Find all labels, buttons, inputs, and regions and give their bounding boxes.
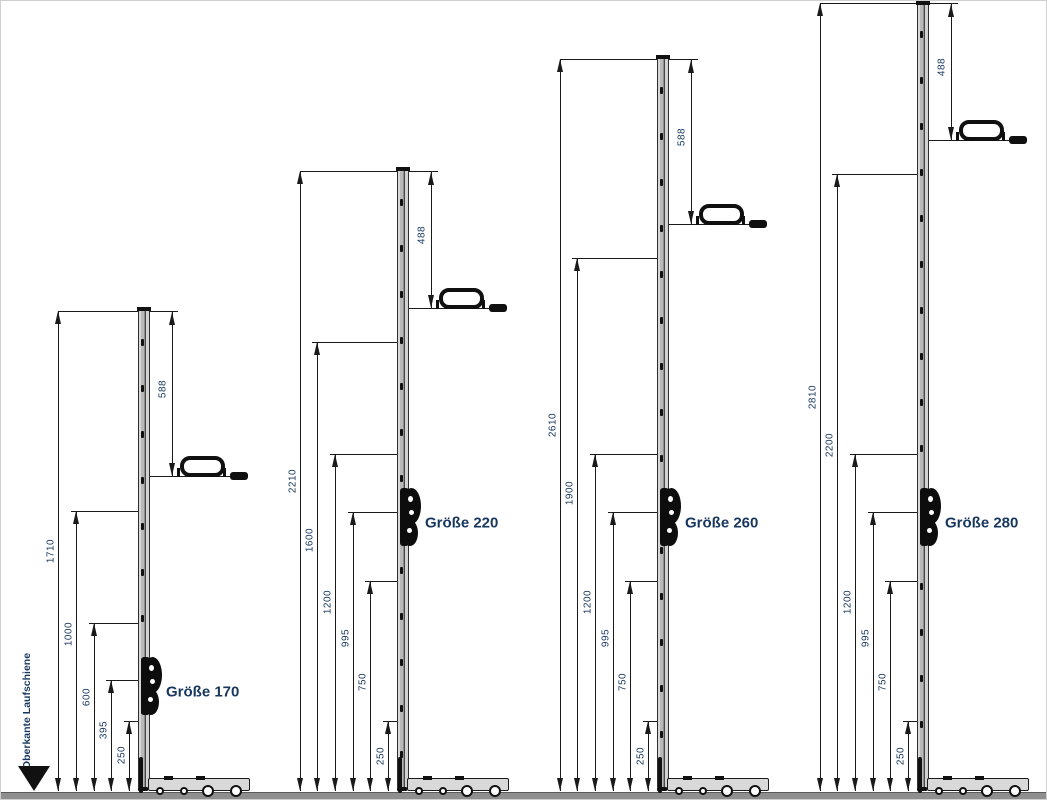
carriage-roller — [415, 787, 423, 795]
top-offset-dimension-value: 588 — [158, 380, 169, 398]
dimension-tick-line — [625, 581, 657, 582]
dimension-arrow-up-icon — [126, 721, 132, 734]
carriage-roller — [721, 785, 733, 797]
gear-rail — [138, 311, 150, 787]
dimension-tick-line — [330, 454, 397, 455]
dimension-line — [613, 512, 614, 791]
dimension-line — [837, 174, 838, 791]
dimension-value: 250 — [636, 747, 647, 765]
dimension-line — [855, 454, 856, 791]
handle-icon — [439, 288, 484, 309]
rail-locking-point — [141, 339, 144, 346]
dimension-arrow-down-icon — [350, 778, 356, 791]
rail-locking-point — [660, 409, 663, 416]
dimension-line — [630, 581, 631, 791]
dimension-arrow-down-icon — [428, 295, 434, 308]
rail-locking-point — [920, 721, 923, 728]
gearbox-detail — [662, 520, 678, 546]
dimension-value: 2210 — [288, 469, 299, 493]
dimension-value: 1000 — [64, 622, 75, 646]
dimension-tick-line — [365, 581, 397, 582]
gearbox-detail — [922, 488, 941, 524]
gearbox-icon — [400, 488, 422, 546]
dimension-tick-line — [832, 174, 917, 175]
rail-locking-point — [400, 199, 403, 206]
rail-locking-point — [920, 353, 923, 360]
dimension-tick-line — [903, 721, 917, 722]
gear-rail — [917, 3, 929, 787]
carriage-detail — [423, 776, 432, 780]
rail-locking-point — [400, 567, 403, 574]
dimension-tick-line — [885, 581, 917, 582]
dimension-arrow-up-icon — [385, 721, 391, 734]
dimension-arrow-up-icon — [870, 512, 876, 525]
dimension-arrow-down-icon — [385, 778, 391, 791]
dimension-value: 2810 — [808, 385, 819, 409]
gearbox-detail — [922, 520, 938, 546]
rail-top-cap — [916, 1, 930, 5]
size-group-label: Größe 280 — [945, 515, 1018, 532]
handle-grip — [489, 304, 507, 312]
carriage-roller — [230, 785, 242, 797]
dimension-arrow-down-icon — [688, 211, 694, 224]
rail-locking-point — [400, 613, 403, 620]
dimension-arrow-up-icon — [350, 512, 356, 525]
gearbox-detail — [669, 510, 674, 515]
carriage-roller — [1009, 785, 1021, 797]
dimension-tick-line — [608, 512, 657, 513]
carriage-roller — [981, 785, 993, 797]
rail-locking-point — [920, 31, 923, 38]
gearbox-detail — [407, 528, 412, 533]
gearbox-detail — [149, 665, 154, 671]
dimension-arrow-down-icon — [852, 778, 858, 791]
rail-locking-point — [660, 455, 663, 462]
dimension-arrow-down-icon — [55, 778, 61, 791]
handle-foot — [177, 468, 180, 477]
rail-locking-point — [400, 337, 403, 344]
dimension-value: 750 — [878, 673, 889, 691]
rail-locking-point — [660, 547, 663, 554]
gearbox-detail — [668, 496, 673, 502]
gearbox-detail — [143, 657, 162, 693]
dimension-tick-line — [89, 623, 138, 624]
rail-locking-point — [920, 583, 923, 590]
carriage-detail — [715, 776, 724, 780]
dimension-arrow-up-icon — [948, 4, 954, 17]
dimension-value: 1900 — [565, 481, 576, 505]
rail-locking-point — [141, 523, 144, 530]
dimension-arrow-down-icon — [557, 778, 563, 791]
dimension-value: 1200 — [323, 590, 334, 614]
dimension-arrow-up-icon — [592, 454, 598, 467]
dimension-arrow-down-icon — [108, 778, 114, 791]
rail-locking-point — [660, 271, 663, 278]
carriage-detail — [975, 776, 984, 780]
dimension-value: 2610 — [548, 413, 559, 437]
gearbox-detail — [927, 528, 932, 533]
dimension-arrow-up-icon — [108, 680, 114, 693]
top-tick-line — [560, 59, 698, 60]
gearbox-detail — [667, 528, 672, 533]
rail-locking-point — [660, 639, 663, 646]
rail-locking-point — [660, 363, 663, 370]
dimension-line — [370, 581, 371, 791]
size-group-label: Größe 260 — [685, 515, 758, 532]
handle-foot — [956, 132, 959, 141]
carriage-detail — [196, 776, 205, 780]
rail-locking-point — [660, 317, 663, 324]
corner-bracket-foot — [657, 787, 667, 791]
dimension-arrow-down-icon — [332, 778, 338, 791]
rail-locking-point — [920, 169, 923, 176]
rail-locking-point — [141, 385, 144, 392]
dimension-tick-line — [124, 721, 138, 722]
baseline-triangle-icon — [18, 766, 50, 791]
dimension-tick-line — [643, 721, 657, 722]
dimension-arrow-down-icon — [645, 778, 651, 791]
dimension-arrow-up-icon — [91, 623, 97, 636]
top-tick-line — [820, 3, 958, 4]
dimension-line — [577, 258, 578, 791]
dimension-arrow-up-icon — [367, 581, 373, 594]
rail-locking-point — [400, 429, 403, 436]
dimension-arrow-down-icon — [73, 778, 79, 791]
top-offset-dimension-line — [431, 171, 432, 308]
dimension-arrow-up-icon — [905, 721, 911, 734]
gear-rail — [657, 59, 669, 787]
dimension-line — [873, 512, 874, 791]
dimension-tick-line — [71, 511, 138, 512]
dimension-arrow-down-icon — [169, 463, 175, 476]
handle-foot — [436, 300, 439, 309]
rail-locking-point — [660, 731, 663, 738]
dimension-arrow-up-icon — [574, 258, 580, 271]
dimension-tick-line — [850, 454, 917, 455]
dimension-arrow-up-icon — [332, 454, 338, 467]
carriage-roller — [959, 787, 967, 795]
dimension-value: 250 — [117, 746, 128, 764]
dimension-arrow-down-icon — [948, 127, 954, 140]
dimension-arrow-down-icon — [610, 778, 616, 791]
carriage-roller — [935, 787, 943, 795]
carriage-roller — [156, 787, 164, 795]
gearbox-detail — [929, 510, 934, 515]
handle-foot — [696, 216, 699, 225]
top-offset-dimension-line — [172, 311, 173, 476]
dimension-arrow-down-icon — [91, 778, 97, 791]
rail-locking-point — [920, 445, 923, 452]
dimension-value: 250 — [376, 747, 387, 765]
dimension-arrow-up-icon — [55, 311, 61, 324]
rail-locking-point — [920, 261, 923, 268]
dimension-arrow-up-icon — [817, 3, 823, 16]
dimension-arrow-up-icon — [428, 172, 434, 185]
top-offset-dimension-line — [691, 59, 692, 224]
dimension-tick-line — [348, 512, 397, 513]
rail-locking-point — [141, 569, 144, 576]
carriage-roller — [202, 785, 214, 797]
dimension-line — [820, 3, 821, 791]
dimension-arrow-up-icon — [834, 174, 840, 187]
dimension-tick-line — [590, 454, 657, 455]
rail-locking-point — [400, 383, 403, 390]
gearbox-detail — [402, 520, 418, 546]
dimension-value: 750 — [358, 673, 369, 691]
dimension-arrow-down-icon — [834, 778, 840, 791]
dimension-arrow-up-icon — [557, 59, 563, 72]
rail-locking-point — [920, 629, 923, 636]
dimension-value: 1600 — [305, 528, 316, 552]
dimension-arrow-down-icon — [126, 778, 132, 791]
dimension-arrow-up-icon — [645, 721, 651, 734]
dimension-arrow-up-icon — [610, 512, 616, 525]
rail-locking-point — [920, 77, 923, 84]
dimension-line — [353, 512, 354, 791]
carriage-roller — [675, 787, 683, 795]
gearbox-detail — [402, 488, 421, 524]
top-offset-dimension-value: 488 — [417, 226, 428, 244]
dimension-tick-line — [383, 721, 397, 722]
carriage-roller — [461, 785, 473, 797]
dimension-line — [560, 59, 561, 791]
size-group-label: Größe 170 — [166, 684, 239, 701]
dimension-line — [94, 623, 95, 791]
handle-icon — [699, 204, 744, 225]
dimension-arrow-down-icon — [905, 778, 911, 791]
gearbox-detail — [928, 496, 933, 502]
gearbox-icon — [660, 488, 682, 546]
dimension-line — [595, 454, 596, 791]
rail-locking-point — [400, 291, 403, 298]
corner-bracket-foot — [397, 787, 407, 791]
rail-locking-point — [920, 123, 923, 130]
dimension-arrow-down-icon — [574, 778, 580, 791]
carriage-roller — [489, 785, 501, 797]
rail-locking-point — [660, 179, 663, 186]
dimension-line — [335, 454, 336, 791]
rail-locking-point — [400, 245, 403, 252]
dimension-line — [317, 342, 318, 791]
dimension-arrow-down-icon — [887, 778, 893, 791]
dimension-arrow-up-icon — [314, 342, 320, 355]
gearbox-detail — [148, 697, 153, 702]
dimension-arrow-down-icon — [870, 778, 876, 791]
dimension-arrow-up-icon — [169, 312, 175, 325]
baseline-label: Oberkante Laufschiene — [21, 653, 33, 769]
carriage-detail — [164, 776, 173, 780]
corner-bracket-foot — [138, 787, 148, 791]
dimension-value: 395 — [99, 721, 110, 739]
rail-locking-point — [141, 431, 144, 438]
dimension-arrow-up-icon — [688, 60, 694, 73]
gearbox-icon — [141, 657, 163, 715]
handle-icon — [959, 120, 1004, 141]
dimension-value: 1200 — [583, 590, 594, 614]
dimension-tick-line — [106, 680, 138, 681]
dimension-arrow-down-icon — [592, 778, 598, 791]
carriage-roller — [439, 787, 447, 795]
carriage-detail — [455, 776, 464, 780]
gearbox-detail — [408, 496, 413, 502]
top-offset-dimension-line — [951, 3, 952, 140]
dimension-value: 995 — [341, 629, 352, 647]
size-group-label: Größe 220 — [425, 515, 498, 532]
dimension-arrow-down-icon — [817, 778, 823, 791]
rail-locking-point — [920, 399, 923, 406]
top-tick-line — [300, 171, 438, 172]
rail-locking-point — [141, 477, 144, 484]
corner-bracket-foot — [917, 787, 927, 791]
rail-locking-point — [920, 215, 923, 222]
carriage-roller — [749, 785, 761, 797]
handle-foot — [742, 216, 745, 225]
dimension-tick-line — [312, 342, 397, 343]
dimension-arrow-down-icon — [367, 778, 373, 791]
dimension-line — [890, 581, 891, 791]
carriage-detail — [683, 776, 692, 780]
carriage-roller — [699, 787, 707, 795]
handle-foot — [1002, 132, 1005, 141]
dimension-tick-line — [868, 512, 917, 513]
gearbox-icon — [920, 488, 942, 546]
dimension-arrow-up-icon — [297, 171, 303, 184]
technical-drawing: Oberkante Laufschiene 171010006003952505… — [0, 0, 1047, 800]
dimension-value: 600 — [82, 688, 93, 706]
rail-locking-point — [660, 225, 663, 232]
carriage-detail — [943, 776, 952, 780]
dimension-value: 1710 — [46, 539, 57, 563]
rail-top-cap — [396, 167, 410, 171]
top-offset-dimension-value: 488 — [937, 58, 948, 76]
dimension-line — [111, 680, 112, 791]
dimension-value: 250 — [896, 747, 907, 765]
dimension-value: 1200 — [843, 590, 854, 614]
dimension-value: 2200 — [825, 433, 836, 457]
rail-locking-point — [920, 307, 923, 314]
dimension-arrow-up-icon — [852, 454, 858, 467]
rail-locking-point — [920, 675, 923, 682]
handle-grip — [749, 220, 767, 228]
dimension-value: 750 — [618, 673, 629, 691]
handle-foot — [223, 468, 226, 477]
rail-locking-point — [400, 475, 403, 482]
top-offset-dimension-value: 588 — [677, 128, 688, 146]
rail-top-cap — [656, 55, 670, 59]
rail-locking-point — [660, 593, 663, 600]
gearbox-detail — [143, 689, 159, 715]
top-tick-line — [58, 311, 178, 312]
dimension-arrow-up-icon — [73, 511, 79, 524]
handle-grip — [1009, 136, 1027, 144]
carriage-roller — [180, 787, 188, 795]
rail-locking-point — [660, 133, 663, 140]
dimension-arrow-up-icon — [627, 581, 633, 594]
dimension-value: 995 — [861, 629, 872, 647]
dimension-tick-line — [572, 258, 657, 259]
rail-locking-point — [400, 659, 403, 666]
rail-top-cap — [137, 307, 151, 311]
gear-rail — [397, 171, 409, 787]
rail-locking-point — [141, 615, 144, 622]
gearbox-detail — [409, 510, 414, 515]
gearbox-detail — [662, 488, 681, 524]
dimension-line — [300, 171, 301, 791]
handle-foot — [482, 300, 485, 309]
handle-icon — [180, 456, 225, 477]
dimension-line — [76, 511, 77, 791]
dimension-arrow-down-icon — [314, 778, 320, 791]
dimension-arrow-down-icon — [627, 778, 633, 791]
rail-locking-point — [400, 705, 403, 712]
rail-locking-point — [660, 87, 663, 94]
gearbox-detail — [150, 679, 155, 684]
dimension-line — [58, 311, 59, 791]
handle-grip — [230, 472, 248, 480]
rail-locking-point — [660, 685, 663, 692]
dimension-arrow-down-icon — [297, 778, 303, 791]
dimension-value: 995 — [601, 629, 612, 647]
dimension-arrow-up-icon — [887, 581, 893, 594]
